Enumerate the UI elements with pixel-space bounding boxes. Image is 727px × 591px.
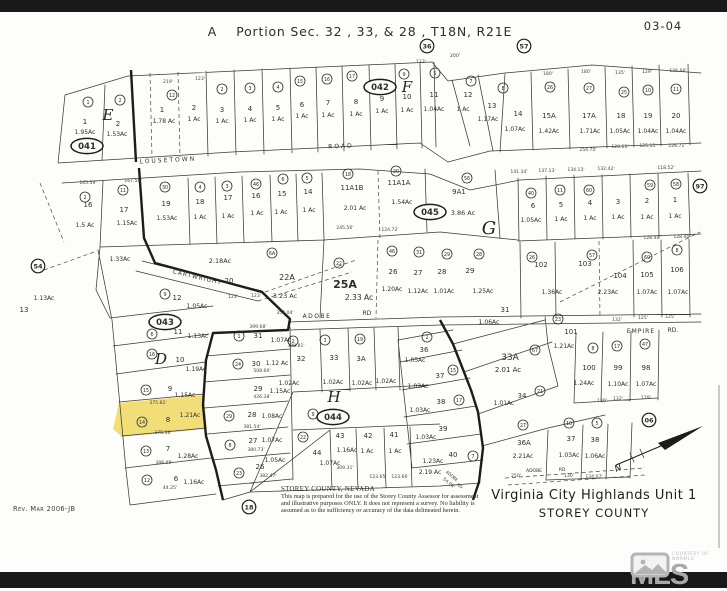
lot-label: 1.20Ac xyxy=(382,286,403,293)
lot-label: 1.03Ac xyxy=(416,434,437,441)
lot-label: 1 Ac xyxy=(193,214,206,221)
road-label: EMPIRE xyxy=(627,328,655,335)
dimension-label: 118.52' xyxy=(657,165,674,171)
parcel-ref-number: 5 xyxy=(433,71,436,77)
parcel-ref-number: 21 xyxy=(537,389,543,395)
lot-label: 1.04Ac xyxy=(666,128,687,135)
lot-label: 11A1B xyxy=(341,184,364,192)
dimension-label: 137.13' xyxy=(538,168,555,174)
lot-label: 1.53Ac xyxy=(107,131,128,138)
lot-label: 2.23Ac xyxy=(598,289,619,296)
lot-label: 1 Ac xyxy=(250,210,263,217)
parcel-ref-number: 19 xyxy=(357,337,363,343)
adjacent-sheet-number: 18 xyxy=(244,503,254,511)
road-label: CARTWRIGHT xyxy=(172,268,223,286)
parcel-ref-circle: 2 xyxy=(115,95,125,105)
parcel-ref-number: 10 xyxy=(645,88,651,94)
parcel-ref-number: 1 xyxy=(86,100,89,106)
parcel-ref-circle: 23 xyxy=(234,468,244,478)
lot-label: 103 xyxy=(578,260,591,268)
parcel-ref-number: 26 xyxy=(547,85,553,91)
parcel-ref-circle: 6A xyxy=(267,248,277,258)
parcel-ref-number: 28 xyxy=(476,252,482,258)
parcel-ref-circle: 30 xyxy=(160,182,170,192)
adjacent-sheet-ref: 18 xyxy=(242,500,256,514)
lot-label: 12 xyxy=(173,294,182,302)
lot-label: 31 xyxy=(254,332,263,340)
adjacent-sheet-ref: 97 xyxy=(693,179,707,193)
parcel-ref-circle: 8 xyxy=(588,343,598,353)
lot-label: 2 xyxy=(116,120,120,128)
lot-label: 1.23Ac xyxy=(423,458,444,465)
lot-label: 43 xyxy=(336,432,345,440)
revision-note: Rev. Mar 2006-JB xyxy=(13,505,75,513)
parcel-ref-number: 18 xyxy=(345,172,351,178)
road-label: RD xyxy=(363,310,372,317)
section-letter: E xyxy=(102,106,114,124)
lot-label: 6 xyxy=(531,202,536,210)
lot-label: 1.12Ac xyxy=(408,288,429,295)
parcel-ref-number: 2 xyxy=(118,98,121,104)
lot-label: 1.07Ac xyxy=(636,381,657,388)
parcel-ref-circle: 47 xyxy=(640,339,650,349)
parcel-ref-number: 8 xyxy=(501,86,504,92)
lot-label: 18 xyxy=(196,198,205,206)
adjacent-sheet-ref: 36 xyxy=(420,39,434,53)
lot-label: 33A xyxy=(501,353,519,363)
adjacent-sheet-number: 97 xyxy=(695,182,704,190)
lot-label: 28 xyxy=(438,268,447,276)
parcel-ref-number: 46 xyxy=(253,182,259,188)
parcel-ref-number: 8 xyxy=(228,443,231,449)
parcel-ref-number: 2 xyxy=(291,339,294,345)
parcel-ref-circle: 11 xyxy=(118,185,128,195)
lot-label: 33 xyxy=(330,354,339,362)
map-block-ref: 041 xyxy=(71,138,103,153)
adjacent-sheet-ref: 54 xyxy=(31,259,45,273)
sheet-code: 03-04 xyxy=(644,19,682,33)
lot-label: 6 xyxy=(300,101,305,109)
parcel-ref-number: 12 xyxy=(169,93,175,99)
lot-label: 1.05Ac xyxy=(265,457,286,464)
lot-label: 5 xyxy=(276,104,280,112)
lot-label: 1.5 Ac xyxy=(76,222,95,229)
lot-label: 16 xyxy=(252,192,261,200)
lot-label: 18 xyxy=(617,112,626,120)
lot-label: 1.02Ac xyxy=(323,379,344,386)
parcel-ref-circle: 6 xyxy=(278,174,288,184)
parcel-ref-number: 15 xyxy=(143,388,149,394)
road-label: ADOBE xyxy=(526,468,542,474)
lot-label: 1.21Ac xyxy=(180,412,201,419)
lot-label: 3 xyxy=(220,106,224,114)
lot-label: 8 xyxy=(166,416,170,424)
parcel-ref-number: 22 xyxy=(300,435,306,441)
lot-label: 17 xyxy=(120,206,129,214)
lot-label: 1.05Ac xyxy=(405,357,426,364)
parcel-ref-circle: 58 xyxy=(671,179,681,189)
dimension-label: 126.71' xyxy=(668,143,685,149)
parcel-ref-number: 11 xyxy=(673,87,679,93)
subdivision-county: STOREY COUNTY xyxy=(488,506,700,520)
parcel-ref-number: 3 xyxy=(248,86,251,92)
map-block-number: 045 xyxy=(421,208,439,218)
parcel-ref-circle: 2 xyxy=(80,192,90,202)
lot-label: 29 xyxy=(466,267,475,275)
parcel-ref-number: 25 xyxy=(621,90,627,96)
lot-label: 1.05Ac xyxy=(610,128,631,135)
parcel-ref-circle: 29 xyxy=(442,249,452,259)
lot-label: 1 Ac xyxy=(388,448,401,455)
dimension-label: 123' xyxy=(228,294,238,300)
lot-label: 36 xyxy=(420,346,429,354)
parcel-ref-circle: 11 xyxy=(671,84,681,94)
parcel-ref-circle: 6 xyxy=(147,329,157,339)
lot-label: 6 xyxy=(174,475,179,483)
parcel-ref-circle: 11 xyxy=(555,185,565,195)
parcel-ref-number: 6 xyxy=(150,332,153,338)
parcel-ref-number: 59 xyxy=(647,183,653,189)
parcel-ref-circle: 18 xyxy=(343,169,353,179)
parcel-ref-circle: 46 xyxy=(251,179,261,189)
lot-label: 1.78 Ac xyxy=(153,118,176,125)
dimension-label: 375.82' xyxy=(149,400,166,406)
parcel-ref-number: 4 xyxy=(276,85,279,91)
adjacent-sheet-ref: 57 xyxy=(517,39,531,53)
lot-label: 1.42Ac xyxy=(539,128,560,135)
dimension-label: 309.31' xyxy=(336,465,353,471)
parcel-ref-circle: 27 xyxy=(584,83,594,93)
lot-label: 3 xyxy=(616,198,620,206)
parcel-ref-number: 56 xyxy=(464,176,470,182)
parcel-ref-number: 8 xyxy=(591,346,594,352)
dimension-label: 180' xyxy=(581,69,591,75)
parcel-ref-circle: 15 xyxy=(141,385,151,395)
parcel-ref-circle: 19 xyxy=(355,334,365,344)
parcel-ref-number: 46 xyxy=(389,249,395,255)
parcel-ref-circle: 17 xyxy=(612,341,622,351)
dimension-label: 130' xyxy=(597,398,607,404)
map-block-number: 043 xyxy=(156,318,174,328)
lot-label: 101 xyxy=(564,328,577,336)
lot-label: 37 xyxy=(567,435,576,443)
parcel-ref-circle: 24 xyxy=(233,359,243,369)
parcel-ref-circle: 1 xyxy=(83,97,93,107)
dimension-label: 123' xyxy=(251,293,261,299)
lot-label: 2.33 Ac xyxy=(345,293,373,302)
dimension-label: 134.07' xyxy=(585,474,602,480)
lot-label: 11A1A xyxy=(388,179,411,187)
lot-label: 106 xyxy=(670,266,684,274)
north-label: N xyxy=(613,463,623,475)
parcel-ref-number: 23 xyxy=(236,471,242,477)
lot-label: 7 xyxy=(326,99,330,107)
parcel-ref-circle: 8 xyxy=(672,245,682,255)
parcel-ref-number: 5 xyxy=(595,421,598,427)
lot-label: 1.13Ac xyxy=(34,295,55,302)
dimension-label: 125' xyxy=(638,315,648,321)
lot-label: 1.06Ac xyxy=(585,453,606,460)
parcel-ref-number: 30 xyxy=(162,185,168,191)
parcel-ref-circle: 5 xyxy=(430,68,440,78)
parcel-ref-circle: 26 xyxy=(527,252,537,262)
lot-label: 1.33Ac xyxy=(110,256,131,263)
parcel-ref-circle: 16 xyxy=(322,74,332,84)
parcel-ref-number: 3 xyxy=(225,184,228,190)
parcel-ref-number: 31 xyxy=(416,250,422,256)
parcel-ref-number: 1 xyxy=(237,334,240,340)
parcel-ref-circle: 15 xyxy=(448,365,458,375)
adjacent-sheet-number: 54 xyxy=(33,262,43,270)
lot-label: 1 xyxy=(83,118,87,126)
dimension-label: 388.05' xyxy=(155,460,172,466)
parcel-ref-circle: 17 xyxy=(347,71,357,81)
lot-label: 38 xyxy=(437,398,446,406)
dimension-label: 132' xyxy=(612,317,622,323)
parcel-ref-number: 11 xyxy=(557,188,563,194)
parcel-ref-circle: 10 xyxy=(564,418,574,428)
lot-label: 27 xyxy=(414,269,423,277)
disclaimer: STOREY COUNTY, NEVADA This map is prepar… xyxy=(281,487,506,515)
lot-label: 15A xyxy=(542,112,556,120)
dimension-label: 245.56' xyxy=(336,225,353,231)
subdivision-name: Virginia City Highlands Unit 1 xyxy=(488,488,700,503)
parcel-ref-number: 67 xyxy=(532,348,538,354)
parcel-ref-number: 47 xyxy=(642,342,648,348)
parcel-ref-number: 2 xyxy=(220,87,223,93)
adjacent-sheet-ref: 06 xyxy=(642,413,656,427)
lot-label: 1 Ac xyxy=(554,216,567,223)
parcel-ref-number: 17 xyxy=(349,74,355,80)
lot-label: 41 xyxy=(390,431,399,439)
parcel-ref-number: 7 xyxy=(471,454,474,460)
page-title: A Portion Sec. 32 , 33, & 28 , T18N, R21… xyxy=(208,24,512,39)
adjacent-sheet-number: 06 xyxy=(644,416,654,424)
dimension-label: 123' xyxy=(416,59,426,65)
lot-label: 40 xyxy=(449,451,458,459)
lot-label: 2.19 Ac xyxy=(419,469,442,476)
lot-label: 1.95Ac xyxy=(75,129,96,136)
parcel-ref-number: 60 xyxy=(586,188,592,194)
lot-label: 32 xyxy=(297,355,306,363)
lot-label: 13 xyxy=(488,102,497,110)
parcel-ref-circle: 7 xyxy=(468,451,478,461)
parcel-ref-number: 12 xyxy=(144,478,150,484)
parcel-ref-circle: 12 xyxy=(167,90,177,100)
parcel-ref-circle: 5 xyxy=(302,173,312,183)
lot-label: 2 xyxy=(192,104,196,112)
lot-label: 26 xyxy=(389,268,398,276)
lot-label: 1 Ac xyxy=(321,112,334,119)
parcel-ref-circle: 57 xyxy=(587,250,597,260)
dimension-label: 44.25' xyxy=(163,485,177,491)
lot-label: 100 xyxy=(582,364,595,372)
dimension-label: 357.04' xyxy=(276,310,293,316)
lot-label: 1 Ac xyxy=(187,116,200,123)
adjacent-sheet-number: 36 xyxy=(422,42,432,50)
lot-label: 2.21Ac xyxy=(513,453,534,460)
lot-label: 26 xyxy=(256,463,265,471)
lot-label: 1 Ac xyxy=(400,107,413,114)
parcel-ref-number: 11 xyxy=(120,188,126,194)
lot-label: 17 xyxy=(224,194,233,202)
lot-label: 102 xyxy=(534,261,547,269)
lot-label: 1.10Ac xyxy=(608,381,629,388)
dimension-label: 124.72' xyxy=(381,227,398,233)
lot-label: 17A xyxy=(582,112,596,120)
dimension-label: 132' xyxy=(613,396,623,402)
lot-label: 9A1 xyxy=(452,188,466,196)
parcel-ref-circle: 9 xyxy=(160,289,170,299)
lot-label: 1 Ac xyxy=(349,111,362,118)
parcel-ref-number: 26 xyxy=(529,255,535,261)
lot-label: 1.05Ac xyxy=(187,303,208,310)
parcel-ref-number: 20 xyxy=(393,169,399,175)
map-block-ref: 044 xyxy=(317,409,349,424)
parcel-ref-circle: 15 xyxy=(295,76,305,86)
dimension-label: 399.68' xyxy=(249,324,266,330)
lot-label: 1.02Ac xyxy=(352,380,373,387)
dimension-label: 125' xyxy=(665,314,675,320)
map-block-number: 041 xyxy=(78,142,96,152)
parcel-ref-number: 60 xyxy=(644,255,650,261)
lot-label: 1.12 Ac xyxy=(266,360,289,367)
lot-label: 1.54Ac xyxy=(392,199,413,206)
parcel-ref-circle: 59 xyxy=(645,180,655,190)
parcel-ref-circle: 22 xyxy=(334,258,344,268)
lot-label: 1 Ac xyxy=(583,215,596,222)
lot-label: 1.04Ac xyxy=(638,128,659,135)
north-arrow: N xyxy=(613,426,703,475)
parcel-ref-number: 13 xyxy=(143,449,149,455)
lot-label: 5 xyxy=(559,201,563,209)
dimension-label: 508.60' xyxy=(253,368,270,374)
parcel-ref-number: 6A xyxy=(269,251,276,257)
lot-label: 2 xyxy=(645,197,649,205)
parcel-ref-number: 9 xyxy=(402,72,405,78)
dimension-label: 125.11' xyxy=(639,143,656,149)
dimension-label: 375.56' xyxy=(154,430,171,436)
map-block-ref: 042 xyxy=(364,79,396,94)
lot-label: 1 Ac xyxy=(360,448,373,455)
lot-label: 1.03Ac xyxy=(559,452,580,459)
dimension-label: 219' xyxy=(163,79,173,85)
parcel-ref-number: 14 xyxy=(139,420,145,426)
lot-label: 20 xyxy=(672,112,681,120)
parcel-ref-number: 2 xyxy=(425,335,428,341)
mls-photo-icon xyxy=(630,552,670,578)
lot-label: 4 xyxy=(248,105,253,113)
lot-label: 39 xyxy=(439,425,448,433)
lot-label: 19 xyxy=(644,112,653,120)
section-letter: D xyxy=(154,350,167,368)
parcel-ref-circle: 5 xyxy=(592,418,602,428)
lot-label: 1.21Ac xyxy=(554,343,575,350)
lot-label: 104 xyxy=(613,272,627,280)
parcel-ref-circle: 2 xyxy=(422,332,432,342)
lot-label: 14 xyxy=(514,110,523,118)
lot-label: 22A xyxy=(279,273,295,282)
lot-label: 1.05Ac xyxy=(521,217,542,224)
lot-label: 1 Ac xyxy=(215,118,228,125)
lot-label: 15 xyxy=(278,190,287,198)
parcel-ref-circle: 3 xyxy=(320,335,330,345)
lot-label: 1.03Ac xyxy=(408,383,429,390)
dimension-label: 123.65' xyxy=(369,474,386,480)
lot-label: 34 xyxy=(518,392,527,400)
section-letter: G xyxy=(482,218,496,239)
subdivision-title: Virginia City Highlands Unit 1 STOREY CO… xyxy=(488,488,700,520)
dimension-label: 380.73' xyxy=(247,447,264,453)
map-block-ref: 043 xyxy=(149,314,181,329)
lot-label: 2.01 Ac xyxy=(344,205,367,212)
dimension-label: 141.34' xyxy=(510,169,527,175)
parcel-ref-number: 17 xyxy=(456,398,462,404)
section-letter: H xyxy=(326,388,341,406)
dimension-label: 398.81' xyxy=(287,343,304,349)
parcel-ref-number: 6 xyxy=(281,177,284,183)
lot-label: 1 xyxy=(160,106,164,114)
parcel-ref-number: 29 xyxy=(444,252,450,258)
parcel-ref-number: 8 xyxy=(675,248,678,254)
parcel-ref-circle: 27 xyxy=(518,420,528,430)
dimension-label: 250' xyxy=(511,473,521,479)
lot-label: 1 Ac xyxy=(295,113,308,120)
map-block-number: 044 xyxy=(324,413,342,423)
lot-label: 1 Ac xyxy=(456,106,469,113)
lot-label: 38 xyxy=(591,436,600,444)
parcel-ref-circle: 2 xyxy=(217,84,227,94)
lot-label: 1.25Ac xyxy=(473,288,494,295)
dimension-label: 123' xyxy=(195,76,205,82)
dimension-label: 126.66' xyxy=(669,68,686,74)
dimension-label: 167.50' xyxy=(124,178,141,184)
lot-label: 27 xyxy=(249,437,258,445)
dimension-label: 180' xyxy=(543,71,553,77)
lot-label: 1.15Ac xyxy=(175,392,196,399)
dimension-label: 132.42' xyxy=(597,166,614,172)
road-label: ADOBE xyxy=(303,313,332,320)
lot-label: 1 xyxy=(673,196,677,204)
lot-label: 1.07Ac xyxy=(668,289,689,296)
parcel-ref-number: 22 xyxy=(336,261,342,267)
lot-label: 28 xyxy=(248,411,257,419)
map-block-number: 042 xyxy=(371,83,389,93)
dimension-label: 130' xyxy=(564,473,574,479)
lot-label: 1.02Ac xyxy=(279,380,300,387)
parcel-ref-circle: 25 xyxy=(619,87,629,97)
lot-label: 105 xyxy=(640,271,653,279)
parcel-ref-circle: 67 xyxy=(530,345,540,355)
road-label: RD. xyxy=(668,327,679,334)
lot-label: 1.06Ac xyxy=(479,319,500,326)
lot-label: 1.17Ac xyxy=(478,116,499,123)
section-letter: F xyxy=(401,78,413,96)
parcel-ref-number: 27 xyxy=(586,86,592,92)
dimension-label: 254.70' xyxy=(579,147,596,153)
parcel-ref-number: 9 xyxy=(311,412,314,418)
parcel-ref-circle: 4 xyxy=(195,182,205,192)
lot-label: 1.08Ac xyxy=(262,413,283,420)
lot-label: 1.15Ac xyxy=(270,388,291,395)
lot-label: 1 Ac xyxy=(611,214,624,221)
lot-label: 1 Ac xyxy=(271,116,284,123)
parcel-ref-circle: 10 xyxy=(643,85,653,95)
parcel-ref-circle: 12 xyxy=(142,475,152,485)
parcel-ref-number: 57 xyxy=(589,253,595,259)
lot-label: 99 xyxy=(614,364,623,372)
dimension-label: 165.59' xyxy=(79,180,96,186)
